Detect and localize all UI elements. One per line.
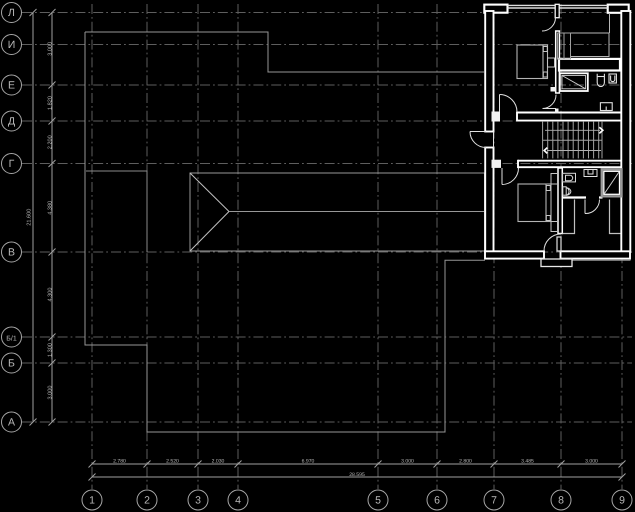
svg-text:5: 5 xyxy=(375,495,381,507)
svg-text:Б/1: Б/1 xyxy=(6,335,17,343)
svg-text:21.600: 21.600 xyxy=(27,209,33,226)
svg-text:Л: Л xyxy=(8,7,15,19)
svg-text:2.780: 2.780 xyxy=(113,459,126,465)
svg-text:9: 9 xyxy=(619,495,625,507)
svg-text:2.200: 2.200 xyxy=(47,135,53,149)
svg-text:1.300: 1.300 xyxy=(47,343,53,357)
svg-text:1.820: 1.820 xyxy=(47,96,53,110)
svg-text:2.800: 2.800 xyxy=(459,459,472,465)
svg-text:6: 6 xyxy=(434,495,440,507)
svg-text:2.520: 2.520 xyxy=(166,459,179,465)
svg-text:2: 2 xyxy=(144,495,150,507)
svg-text:3.000: 3.000 xyxy=(47,386,53,400)
svg-text:7: 7 xyxy=(491,495,497,507)
svg-text:4.300: 4.300 xyxy=(47,288,53,302)
svg-text:Г: Г xyxy=(9,158,15,170)
svg-text:3.000: 3.000 xyxy=(47,42,53,56)
svg-text:2.030: 2.030 xyxy=(212,459,225,465)
svg-text:3.485: 3.485 xyxy=(521,459,534,465)
svg-text:4.380: 4.380 xyxy=(47,201,53,215)
svg-text:В: В xyxy=(8,247,15,259)
svg-text:3.000: 3.000 xyxy=(401,459,414,465)
svg-text:Б: Б xyxy=(8,358,15,370)
svg-text:6.970: 6.970 xyxy=(302,459,315,465)
svg-text:3.000: 3.000 xyxy=(585,459,598,465)
svg-text:И: И xyxy=(8,39,16,51)
svg-text:А: А xyxy=(8,417,15,429)
svg-text:1: 1 xyxy=(89,495,95,507)
svg-text:3: 3 xyxy=(195,495,201,507)
svg-text:Д: Д xyxy=(8,116,15,128)
svg-text:Е: Е xyxy=(8,80,15,92)
svg-text:8: 8 xyxy=(558,495,564,507)
svg-text:28.595: 28.595 xyxy=(349,472,365,478)
svg-text:4: 4 xyxy=(235,495,241,507)
